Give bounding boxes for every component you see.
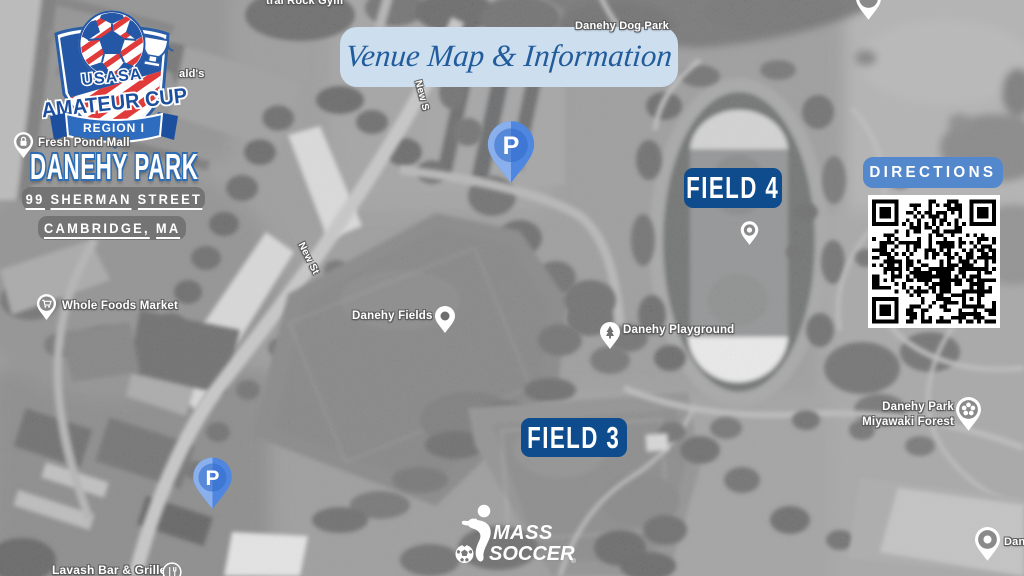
svg-text:MASS: MASS <box>493 522 553 544</box>
svg-text:SOCCER: SOCCER <box>489 543 575 565</box>
svg-text:REGION I: REGION I <box>83 121 145 135</box>
svg-text:P: P <box>206 467 220 490</box>
svg-text:P: P <box>503 132 520 160</box>
svg-text:®: ® <box>571 557 576 565</box>
